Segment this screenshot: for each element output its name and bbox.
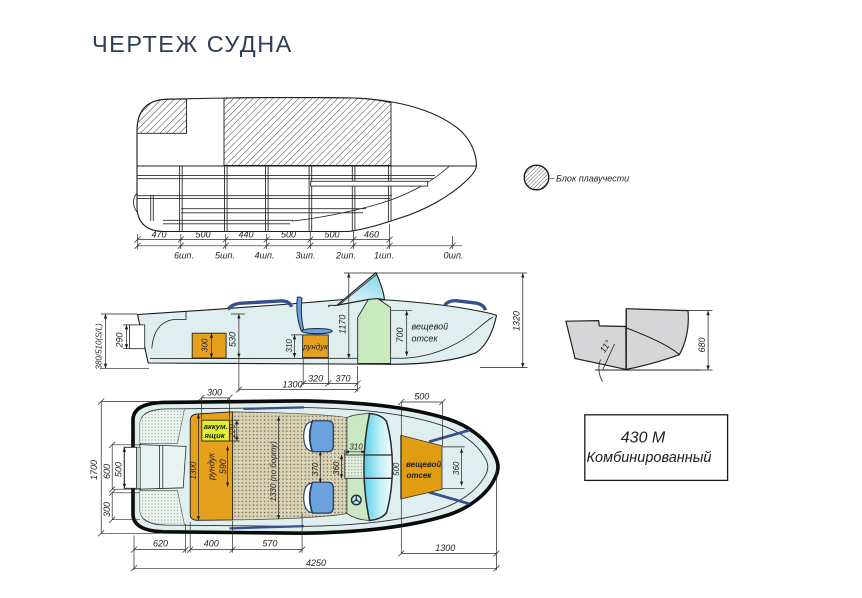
svg-text:аккум.: аккум. bbox=[204, 422, 228, 431]
svg-text:1700: 1700 bbox=[89, 460, 99, 480]
svg-text:600: 600 bbox=[102, 464, 112, 479]
svg-text:590: 590 bbox=[218, 459, 228, 474]
svg-text:2шп.: 2шп. bbox=[335, 251, 356, 261]
svg-text:530: 530 bbox=[228, 332, 238, 347]
svg-text:220: 220 bbox=[228, 424, 237, 439]
svg-text:3шп.: 3шп. bbox=[296, 251, 316, 261]
svg-text:300: 300 bbox=[102, 502, 112, 517]
svg-text:620: 620 bbox=[153, 539, 168, 549]
svg-text:320: 320 bbox=[308, 373, 323, 383]
svg-text:1170: 1170 bbox=[338, 315, 348, 334]
svg-text:0шп.: 0шп. bbox=[444, 251, 464, 261]
svg-text:380/510(S/L): 380/510(S/L) bbox=[95, 323, 104, 370]
svg-text:430 М: 430 М bbox=[621, 430, 666, 447]
svg-text:1300: 1300 bbox=[282, 380, 302, 390]
svg-text:вещевой: вещевой bbox=[412, 322, 449, 332]
svg-text:440: 440 bbox=[238, 230, 253, 240]
svg-text:5шп.: 5шп. bbox=[215, 251, 235, 261]
svg-text:400: 400 bbox=[204, 539, 219, 549]
svg-text:460: 460 bbox=[364, 230, 379, 240]
svg-text:470: 470 bbox=[151, 230, 166, 240]
svg-text:500: 500 bbox=[414, 392, 429, 402]
svg-text:отсек: отсек bbox=[412, 334, 439, 344]
svg-text:1шп.: 1шп. bbox=[374, 251, 394, 261]
svg-text:1300: 1300 bbox=[189, 461, 198, 479]
svg-text:570: 570 bbox=[262, 539, 277, 549]
svg-text:500: 500 bbox=[281, 230, 296, 240]
svg-text:1300: 1300 bbox=[435, 543, 455, 553]
svg-text:310: 310 bbox=[285, 339, 294, 353]
svg-text:4шп.: 4шп. bbox=[255, 251, 275, 261]
svg-text:500: 500 bbox=[195, 230, 210, 240]
svg-text:1330 (по борту): 1330 (по борту) bbox=[269, 441, 278, 502]
svg-text:1320: 1320 bbox=[512, 311, 522, 331]
svg-text:500: 500 bbox=[324, 230, 339, 240]
svg-text:Блок плавучести: Блок плавучести bbox=[556, 174, 629, 184]
svg-text:рундук: рундук bbox=[302, 343, 329, 352]
svg-text:300: 300 bbox=[207, 388, 222, 398]
svg-text:310: 310 bbox=[349, 443, 363, 452]
svg-text:6шп.: 6шп. bbox=[174, 251, 194, 261]
svg-text:370: 370 bbox=[335, 373, 350, 383]
svg-text:700: 700 bbox=[395, 327, 405, 342]
svg-text:500: 500 bbox=[392, 462, 401, 476]
svg-text:4250: 4250 bbox=[306, 558, 326, 568]
svg-text:отсек: отсек bbox=[407, 471, 433, 480]
svg-text:500: 500 bbox=[114, 462, 124, 477]
svg-text:680: 680 bbox=[697, 337, 707, 352]
svg-text:360: 360 bbox=[452, 461, 461, 475]
svg-text:Комбинированный: Комбинированный bbox=[587, 450, 712, 466]
svg-text:370: 370 bbox=[311, 462, 320, 476]
svg-text:рундук: рундук bbox=[207, 452, 217, 481]
svg-text:ящик: ящик bbox=[204, 431, 226, 440]
svg-text:360: 360 bbox=[332, 461, 341, 475]
svg-text:вещевой: вещевой bbox=[406, 460, 441, 469]
svg-text:290: 290 bbox=[115, 332, 125, 348]
svg-text:300: 300 bbox=[201, 338, 210, 352]
